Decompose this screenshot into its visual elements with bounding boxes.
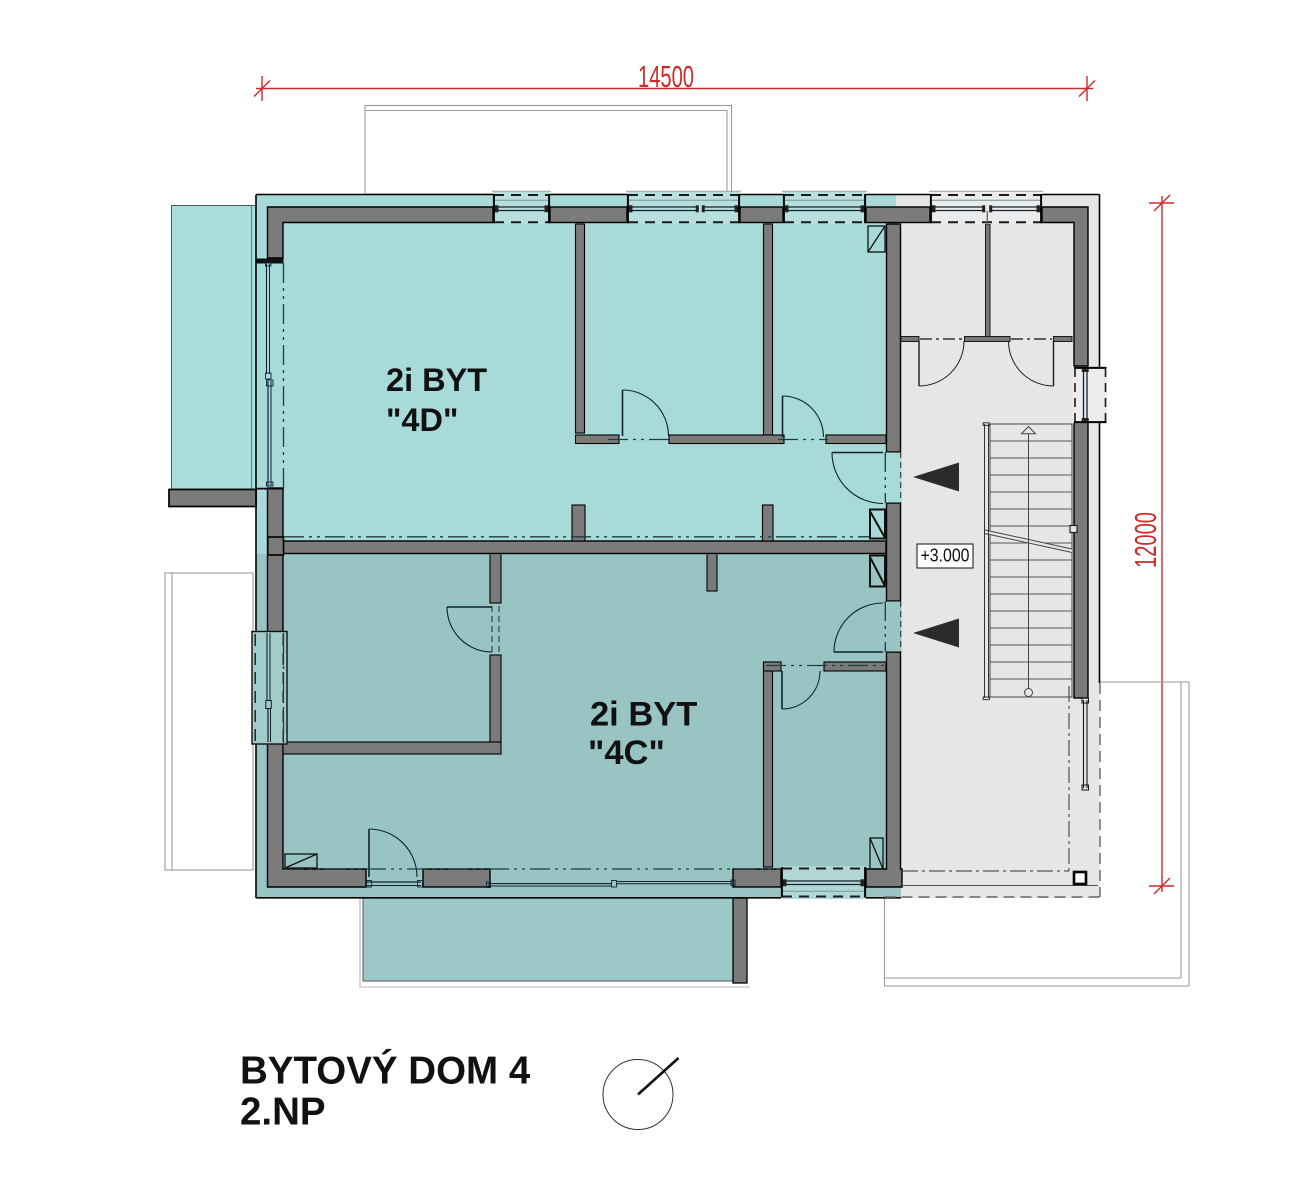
- svg-text:+3.000: +3.000: [921, 545, 970, 566]
- svg-text:"4C": "4C": [588, 734, 665, 772]
- svg-text:2i BYT: 2i BYT: [386, 362, 487, 398]
- svg-text:12000: 12000: [1128, 512, 1163, 568]
- svg-text:2i BYT: 2i BYT: [590, 696, 697, 734]
- svg-text:"4D": "4D": [386, 402, 458, 438]
- svg-text:14500: 14500: [638, 59, 694, 94]
- svg-text:BYTOVÝ DOM 4: BYTOVÝ DOM 4: [240, 1049, 531, 1093]
- svg-text:2.NP: 2.NP: [240, 1091, 326, 1134]
